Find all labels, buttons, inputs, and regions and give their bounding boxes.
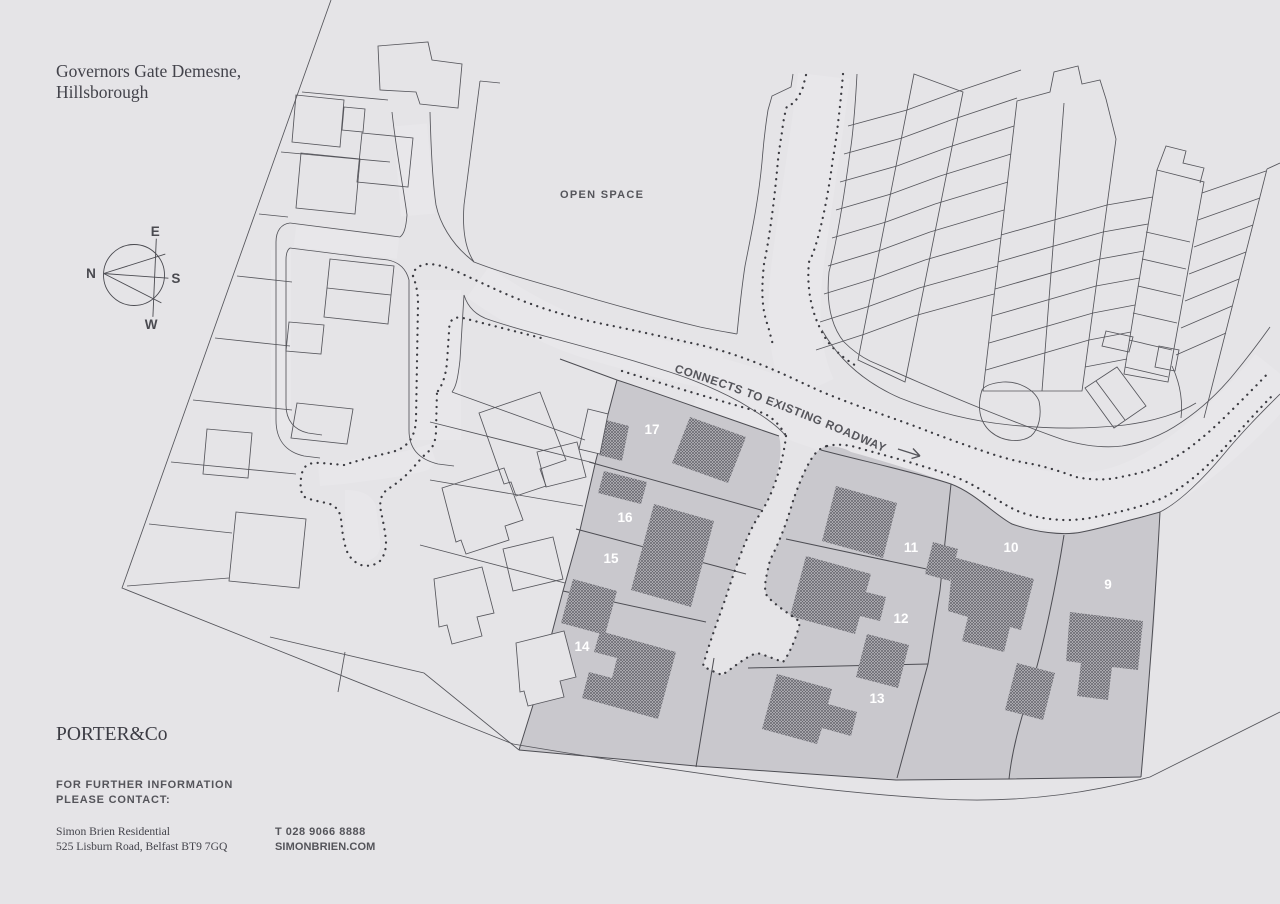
svg-text:17: 17 (644, 422, 659, 437)
svg-text:OPEN SPACE: OPEN SPACE (560, 189, 644, 201)
svg-text:16: 16 (617, 510, 633, 525)
svg-text:Hillsborough: Hillsborough (56, 82, 149, 102)
svg-text:PLEASE CONTACT:: PLEASE CONTACT: (56, 794, 170, 806)
svg-text:FOR FURTHER INFORMATION: FOR FURTHER INFORMATION (56, 779, 233, 791)
svg-text:12: 12 (893, 611, 908, 626)
svg-text:N: N (86, 266, 96, 281)
svg-text:PORTER&Co: PORTER&Co (56, 724, 168, 745)
svg-text:14: 14 (574, 639, 590, 654)
svg-text:13: 13 (869, 691, 885, 706)
svg-text:SIMONBRIEN.COM: SIMONBRIEN.COM (275, 841, 375, 853)
svg-text:10: 10 (1003, 540, 1018, 555)
svg-text:S: S (171, 271, 180, 286)
svg-text:E: E (151, 224, 160, 239)
svg-text:525 Lisburn Road, Belfast BT9: 525 Lisburn Road, Belfast BT9 7GQ (56, 840, 228, 853)
svg-text:T 028 9066 8888: T 028 9066 8888 (275, 826, 366, 838)
svg-text:W: W (145, 317, 158, 332)
svg-text:9: 9 (1104, 577, 1112, 592)
svg-text:15: 15 (603, 551, 619, 566)
svg-text:Governors Gate Demesne,: Governors Gate Demesne, (56, 61, 241, 81)
svg-text:11: 11 (904, 540, 919, 555)
svg-text:Simon Brien Residential: Simon Brien Residential (56, 825, 170, 838)
